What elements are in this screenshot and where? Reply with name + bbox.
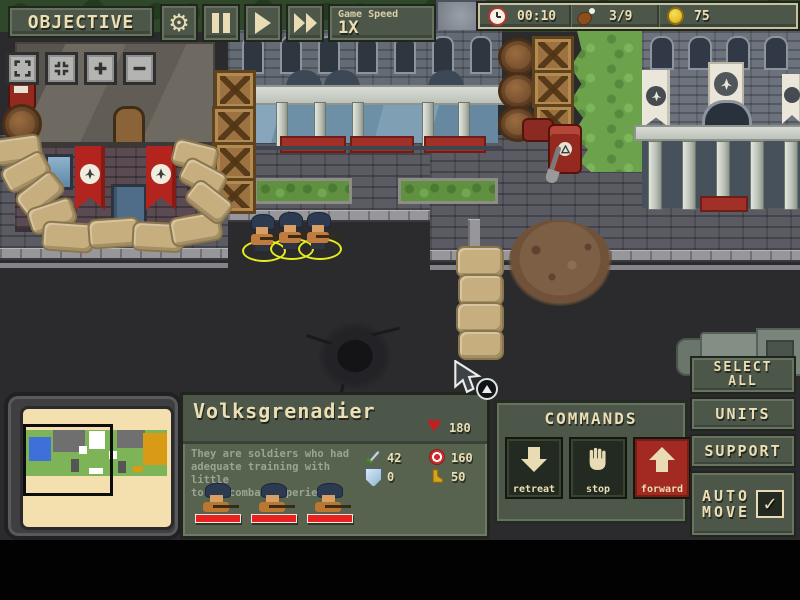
hedge-planter-2 (398, 178, 498, 204)
upper-window (470, 36, 492, 74)
soldier-rifle (213, 505, 239, 508)
fast-forward-icon (306, 13, 317, 33)
retreat-button[interactable]: retreat (505, 437, 563, 499)
column (648, 141, 662, 210)
unit-card[interactable] (307, 483, 353, 525)
eagle-icon (83, 167, 97, 181)
cursor-move-badge (476, 378, 498, 400)
heart-icon: ♥ (427, 419, 441, 433)
auto-move-label-line2: MOVE (702, 504, 750, 520)
barrel-label (14, 86, 28, 93)
meat-icon (577, 8, 595, 24)
select-all-label-line2: ALL (728, 375, 757, 389)
hazard-icon (561, 145, 570, 154)
minimap-panel[interactable] (4, 392, 182, 540)
column (784, 141, 798, 210)
forward-arrow-icon (649, 447, 675, 472)
meat-bone (589, 8, 595, 14)
unit-hp-bar (307, 514, 353, 523)
retreat-label: retreat (513, 484, 555, 495)
pause-icon (223, 13, 230, 33)
banner-emblem-icon (80, 164, 100, 184)
minimap-block-building (118, 461, 126, 473)
zoom-out-button[interactable] (123, 52, 156, 85)
support-button[interactable]: SUPPORT (690, 434, 796, 468)
ammo-value: 160 (451, 451, 473, 465)
arrow-shaft (656, 460, 668, 472)
mouse-cursor (452, 360, 500, 402)
wooden-crate (532, 36, 574, 74)
auto-move-checkbox[interactable]: ✓ (756, 490, 784, 518)
checkmark-icon: ✓ (763, 494, 778, 515)
soldier-rifle (325, 505, 351, 508)
units-button[interactable]: UNITS (690, 397, 796, 431)
pause-button[interactable] (202, 4, 240, 42)
hedge-planter-1 (254, 178, 352, 204)
speed-value: 50 (451, 470, 465, 484)
curb-left (0, 248, 228, 260)
map-soldier[interactable] (304, 212, 334, 250)
soldier-legs (311, 243, 325, 249)
red-carpet (424, 136, 486, 153)
expand-view-button[interactable] (6, 52, 39, 85)
forward-button[interactable]: forward (633, 437, 691, 499)
minimap-block-building (133, 466, 143, 472)
fit-view-button[interactable] (45, 52, 78, 85)
objective-label: OBJECTIVE (28, 12, 135, 33)
eagle-icon (650, 90, 663, 103)
stop-label: stop (586, 484, 610, 495)
game-speed-panel: Game Speed 1X (328, 4, 436, 42)
units-label: UNITS (715, 406, 770, 422)
badge-arrow-up-icon (482, 385, 492, 393)
pause-icon (212, 13, 219, 33)
column (682, 141, 696, 210)
eagle-icon (719, 77, 734, 92)
banner-emblem-icon (151, 164, 171, 184)
banner-emblem-icon (646, 86, 666, 106)
dirt-speckles (520, 232, 600, 292)
arrow-head (521, 459, 547, 472)
play-icon (255, 12, 271, 34)
auto-move-button[interactable]: AUTO MOVE ✓ (690, 471, 796, 537)
unit-card[interactable] (251, 483, 297, 525)
minimap-block-building (143, 433, 167, 465)
coin-icon (667, 7, 684, 25)
clock-hand (497, 16, 501, 18)
time-value: 00:10 (517, 9, 556, 24)
auto-move-label-line1: AUTO (702, 488, 750, 504)
expand-icon (14, 60, 31, 77)
zoom-in-icon (92, 60, 109, 77)
road-edge-line-left (0, 263, 228, 268)
shield-icon (365, 468, 382, 487)
sword-icon (365, 449, 381, 465)
contract-icon (53, 60, 70, 77)
game-screen: OBJECTIVE ⚙ Game Speed 1X 00:10 3/ (0, 0, 800, 600)
red-carpet (280, 136, 346, 153)
view-controls (6, 52, 156, 85)
map-soldier[interactable] (248, 214, 278, 252)
armor-value: 0 (387, 470, 394, 484)
objective-button[interactable]: OBJECTIVE (8, 6, 154, 38)
right-colonnade (642, 141, 800, 208)
unit-panel-header: Volksgrenadier ♥ 180 (183, 395, 487, 444)
wooden-crate (212, 106, 256, 146)
building-center (228, 30, 502, 150)
bottom-letterbox (0, 540, 800, 600)
play-button[interactable] (244, 4, 282, 42)
soldier-legs (283, 243, 297, 249)
clock-icon (488, 7, 507, 26)
wooden-crate (532, 70, 574, 108)
resource-bar: 00:10 3/9 75 (478, 3, 798, 29)
map-soldier[interactable] (276, 212, 306, 250)
sandbag (458, 330, 504, 360)
soldier-legs (255, 245, 269, 251)
attic-window (113, 106, 145, 146)
attack-value: 42 (387, 451, 401, 465)
soldier-rifle (316, 235, 340, 238)
support-label: SUPPORT (704, 443, 781, 459)
red-carpet (700, 196, 748, 212)
eagle-icon (154, 167, 168, 181)
hp-value: 180 (449, 421, 471, 435)
arrow-head (649, 447, 675, 460)
arrow-shaft (528, 447, 540, 459)
boot-icon (429, 468, 445, 484)
food-value: 3/9 (609, 9, 632, 24)
fast-forward-button[interactable] (286, 4, 324, 42)
minimap-screen (20, 406, 174, 530)
center-base-line (228, 146, 502, 150)
time-section: 00:10 (480, 5, 569, 27)
banner-emblem-icon (784, 87, 800, 103)
unit-hp-bar (195, 514, 241, 523)
forward-label: forward (641, 484, 683, 495)
gold-section: 75 (657, 5, 796, 27)
column (750, 141, 764, 210)
plaque-emblem-icon (714, 72, 738, 96)
right-cornice (634, 125, 800, 141)
wooden-crate (214, 70, 256, 110)
commands-title: COMMANDS (497, 409, 685, 428)
stop-button[interactable]: stop (569, 437, 627, 499)
minimap-block-building (117, 430, 145, 448)
unit-hp-bar (251, 514, 297, 523)
select-all-button[interactable]: SELECT ALL (690, 356, 796, 394)
food-section: 3/9 (569, 5, 657, 27)
unit-info-panel: Volksgrenadier ♥ 180 They are soldiers w… (180, 392, 490, 539)
settings-button[interactable]: ⚙ (160, 4, 198, 42)
unit-name: Volksgrenadier (193, 399, 376, 423)
right-window (764, 36, 788, 70)
zoom-out-icon (131, 60, 148, 77)
zoom-in-button[interactable] (84, 52, 117, 85)
ammo-icon (429, 449, 445, 465)
select-all-label-line1: SELECT (714, 361, 773, 375)
fast-forward-icon (294, 13, 305, 33)
red-carpet (350, 136, 414, 153)
auto-move-label: AUTO MOVE (702, 488, 750, 520)
game-speed-value: 1X (338, 20, 434, 36)
building-right (642, 30, 800, 178)
unit-description-line: They are soldiers who had (191, 448, 361, 461)
commands-panel: COMMANDS retreat stop forwa (494, 400, 688, 524)
minimap-viewport-rect[interactable] (23, 424, 113, 496)
unit-card[interactable] (195, 483, 241, 525)
retreat-arrow-icon (521, 447, 547, 472)
soldier-rifle (269, 505, 295, 508)
gear-icon: ⚙ (168, 11, 190, 35)
hand-icon (585, 446, 611, 472)
right-window (650, 36, 674, 70)
gold-value: 75 (694, 9, 710, 24)
